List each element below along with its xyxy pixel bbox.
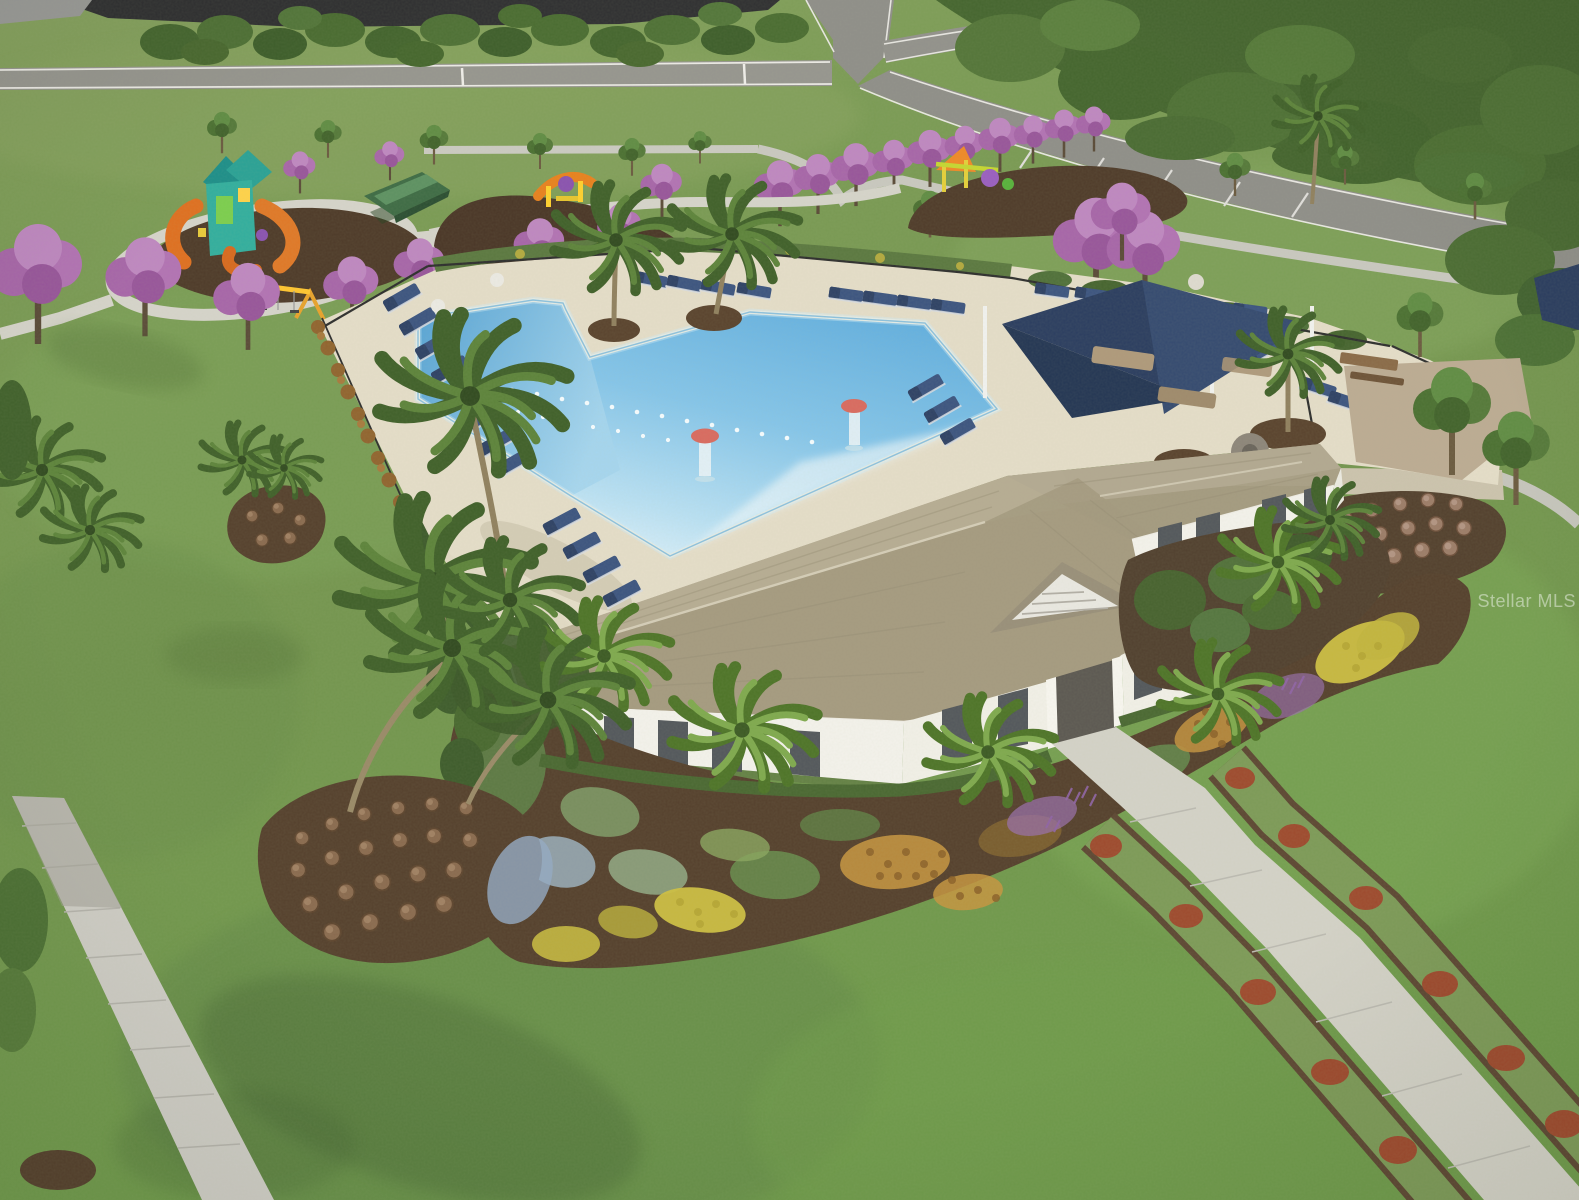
svg-text:Stellar MLS: Stellar MLS	[1477, 591, 1576, 611]
